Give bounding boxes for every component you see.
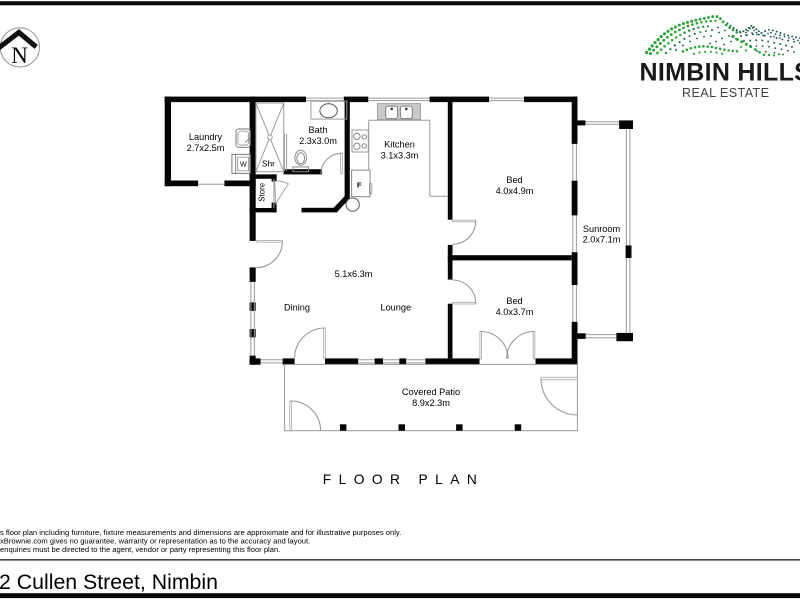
svg-text:2 Cullen Street, Nimbin: 2 Cullen Street, Nimbin [0,570,218,594]
svg-text:Sunroom: Sunroom [583,224,621,234]
svg-text:enquiries must be directed to: enquiries must be directed to the agent,… [0,545,280,554]
svg-text:5.1x6.3m: 5.1x6.3m [335,269,373,279]
svg-text:Kitchen: Kitchen [384,140,415,150]
svg-text:4.0x4.9m: 4.0x4.9m [496,186,534,196]
svg-text:Bed: Bed [506,175,522,185]
svg-text:N: N [11,43,28,68]
svg-text:FLOOR PLAN: FLOOR PLAN [323,472,484,487]
svg-text:8.9x2.3m: 8.9x2.3m [412,398,450,408]
svg-text:NIMBIN HILLS: NIMBIN HILLS [640,58,800,86]
svg-text:Dining: Dining [284,302,310,312]
svg-text:Bed: Bed [506,296,522,306]
svg-text:Bath: Bath [309,125,328,135]
svg-text:2.7x2.5m: 2.7x2.5m [187,143,225,153]
svg-text:REAL ESTATE: REAL ESTATE [682,86,769,100]
svg-text:Lounge: Lounge [380,302,411,312]
svg-text:F: F [357,181,362,190]
svg-text:3.1x3.3m: 3.1x3.3m [381,151,419,161]
svg-text:Laundry: Laundry [189,132,223,142]
svg-text:2.0x7.1m: 2.0x7.1m [583,235,621,245]
svg-text:2.3x3.0m: 2.3x3.0m [299,136,337,146]
svg-text:W: W [240,162,247,169]
svg-text:Covered Patio: Covered Patio [402,387,460,397]
svg-text:Shr: Shr [262,158,275,168]
svg-text:Store: Store [257,182,266,201]
svg-text:4.0x3.7m: 4.0x3.7m [496,307,534,317]
